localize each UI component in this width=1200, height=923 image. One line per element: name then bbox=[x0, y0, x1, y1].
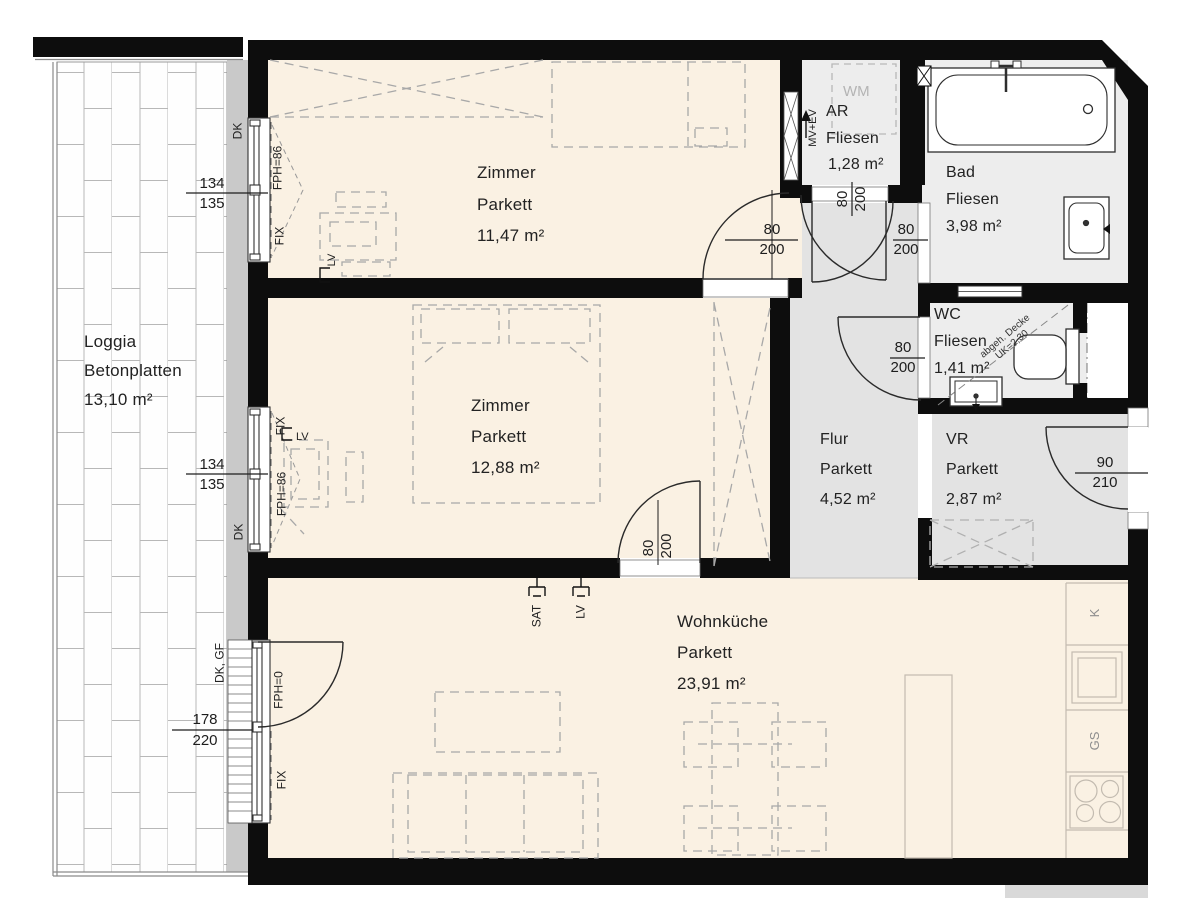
fridge-label: K bbox=[1088, 609, 1102, 618]
bad-surface: Fliesen bbox=[946, 192, 999, 209]
flur-surface: Parkett bbox=[820, 462, 872, 479]
vr-name: VR bbox=[946, 432, 969, 449]
window2-parapet-label: FPH=86 bbox=[276, 472, 289, 516]
wohnkueche-door-width: 80 bbox=[641, 540, 657, 557]
window2-opening-label: DK bbox=[233, 524, 246, 541]
zimmer2-area: 12,88 m² bbox=[471, 459, 540, 477]
floor-plan: Loggia Betonplatten 13,10 m² Zimmer Park… bbox=[0, 0, 1200, 923]
bathtub bbox=[928, 61, 1115, 152]
window1-height: 135 bbox=[188, 196, 236, 212]
wc-sink bbox=[950, 377, 1002, 411]
ar-door-width: 80 bbox=[835, 191, 851, 208]
terrace-opening-label: DK, GF bbox=[214, 643, 227, 683]
entry-door-height: 210 bbox=[1083, 475, 1127, 491]
loggia-surface: Betonplatten bbox=[84, 362, 182, 380]
wc-niche bbox=[1087, 303, 1128, 398]
zimmer1-door-width: 80 bbox=[748, 222, 796, 238]
zimmer2-outlet-label: LV bbox=[296, 432, 309, 444]
flur-name: Flur bbox=[820, 432, 848, 449]
dishwasher-label: GS bbox=[1088, 732, 1102, 751]
ar-surface: Fliesen bbox=[826, 131, 879, 148]
vr-surface: Parkett bbox=[946, 462, 998, 479]
window2-fix-label: FIX bbox=[275, 417, 288, 436]
washing-machine-label: WM bbox=[843, 84, 870, 100]
plumbing-marker bbox=[917, 66, 931, 86]
window1-width: 134 bbox=[188, 176, 236, 192]
ar-area: 1,28 m² bbox=[828, 157, 884, 174]
zimmer1-outlet-label: LV bbox=[327, 254, 339, 267]
wc-surface: Fliesen bbox=[934, 334, 987, 351]
zimmer1-area: 11,47 m² bbox=[477, 227, 544, 245]
loggia-beam bbox=[33, 37, 243, 57]
zimmer1-door-height: 200 bbox=[748, 242, 796, 258]
bad-area: 3,98 m² bbox=[946, 219, 1002, 236]
terrace-door-width: 178 bbox=[181, 712, 229, 728]
bad-door-height: 200 bbox=[886, 242, 926, 258]
wc-name: WC bbox=[934, 307, 961, 324]
bad-name: Bad bbox=[946, 165, 975, 182]
terrace-door-height: 220 bbox=[181, 733, 229, 749]
entry-door-width: 90 bbox=[1083, 455, 1127, 471]
wc-door-height: 200 bbox=[883, 360, 923, 376]
window1-opening-label: DK bbox=[232, 123, 245, 140]
neighbor-slab bbox=[1005, 885, 1148, 898]
wohnkueche-name: Wohnküche bbox=[677, 613, 768, 631]
wohnkueche-door-height: 200 bbox=[659, 533, 675, 558]
ar-door-height: 200 bbox=[853, 186, 869, 211]
window1-fix-label: FIX bbox=[274, 227, 287, 246]
vr-area: 2,87 m² bbox=[946, 492, 1002, 509]
window2-width: 134 bbox=[188, 457, 236, 473]
terrace-fix-label: FIX bbox=[276, 771, 289, 790]
terrace-door bbox=[228, 640, 271, 823]
terrace-parapet-label: FPH=0 bbox=[273, 671, 286, 709]
zimmer2-name: Zimmer bbox=[471, 397, 530, 415]
wc-door-width: 80 bbox=[883, 340, 923, 356]
zimmer2-surface: Parkett bbox=[471, 428, 526, 446]
zimmer1-name: Zimmer bbox=[477, 164, 536, 182]
bad-sink bbox=[1064, 197, 1110, 259]
zimmer1-surface: Parkett bbox=[477, 196, 532, 214]
shaft bbox=[784, 92, 798, 180]
loggia-area: 13,10 m² bbox=[84, 391, 153, 409]
ventilation-label: MV+EV bbox=[808, 109, 820, 147]
sat-outlet-label: SAT bbox=[531, 605, 544, 627]
flur-area: 4,52 m² bbox=[820, 492, 876, 509]
loggia-name: Loggia bbox=[84, 333, 136, 351]
wohnkueche-surface: Parkett bbox=[677, 644, 732, 662]
light-outlet-label: LV bbox=[575, 605, 588, 619]
ar-name: AR bbox=[826, 104, 849, 121]
wohnkueche-area: 23,91 m² bbox=[677, 675, 746, 693]
flur-floor bbox=[790, 203, 918, 578]
bad-door-width: 80 bbox=[886, 222, 926, 238]
floor-plan-drawing bbox=[0, 0, 1200, 923]
wc-area: 1,41 m² bbox=[934, 361, 990, 378]
window2-height: 135 bbox=[188, 477, 236, 493]
window1-parapet-label: FPH=86 bbox=[272, 146, 285, 190]
